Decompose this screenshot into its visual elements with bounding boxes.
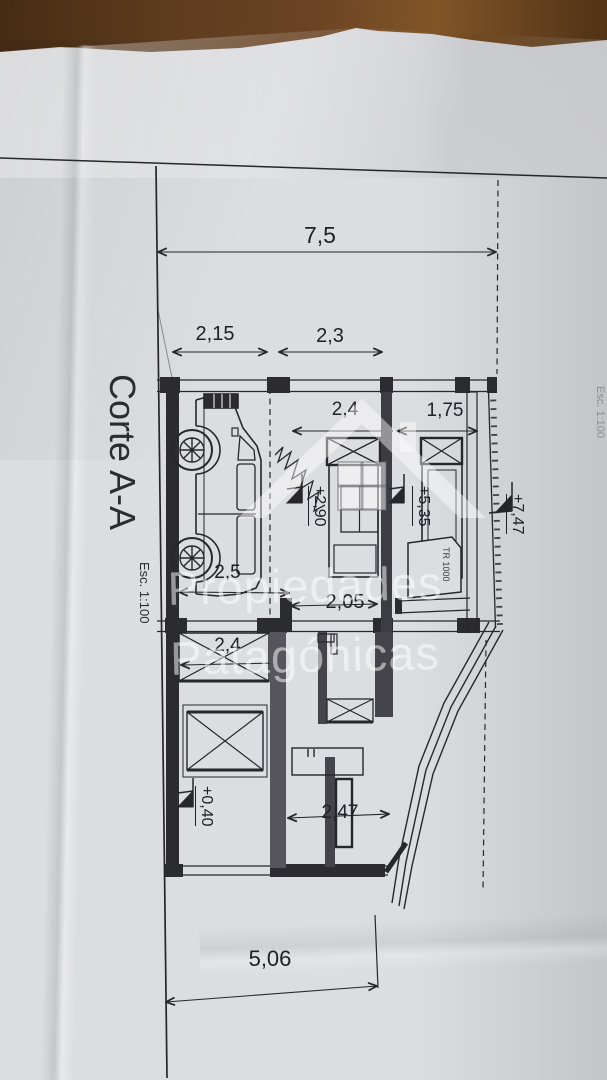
watermark-line2: Patagónicas	[85, 627, 526, 683]
watermark-layer	[0, 0, 607, 1080]
watermark-line1: Propiedades	[85, 557, 526, 613]
house-logo-icon	[238, 399, 486, 518]
photographed-plan-sheet: 7,5 2,15 2,3 2,4 1,75 2,5 2,05 2,4 2,47 …	[0, 0, 607, 1080]
